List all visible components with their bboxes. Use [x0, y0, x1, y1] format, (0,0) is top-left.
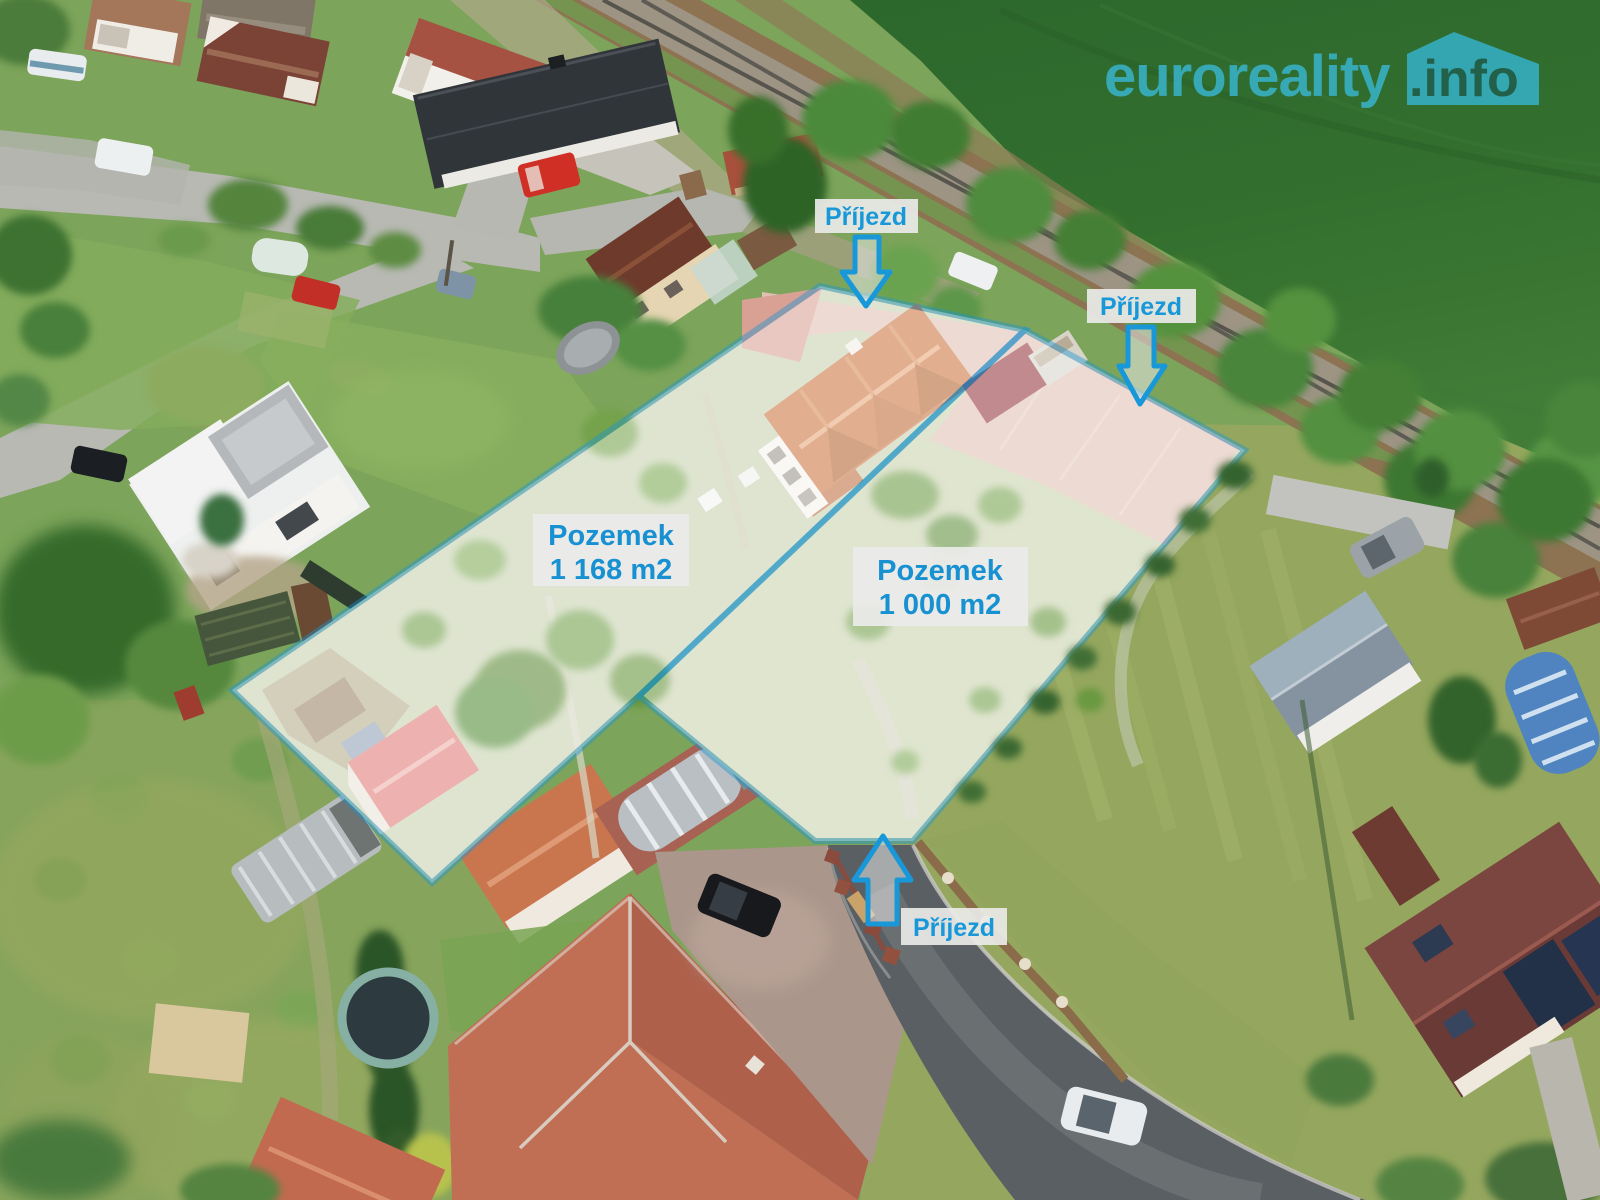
svg-text:Pozemek: Pozemek [877, 555, 1004, 587]
svg-text:euroreality: euroreality [1104, 44, 1390, 109]
svg-text:.info: .info [1409, 50, 1519, 108]
svg-text:Příjezd: Příjezd [825, 203, 907, 231]
svg-text:Příjezd: Příjezd [1100, 293, 1182, 321]
svg-text:Příjezd: Příjezd [913, 914, 995, 942]
svg-text:1 168 m2: 1 168 m2 [550, 554, 673, 586]
svg-text:Pozemek: Pozemek [548, 520, 675, 552]
svg-text:1 000 m2: 1 000 m2 [879, 589, 1002, 621]
